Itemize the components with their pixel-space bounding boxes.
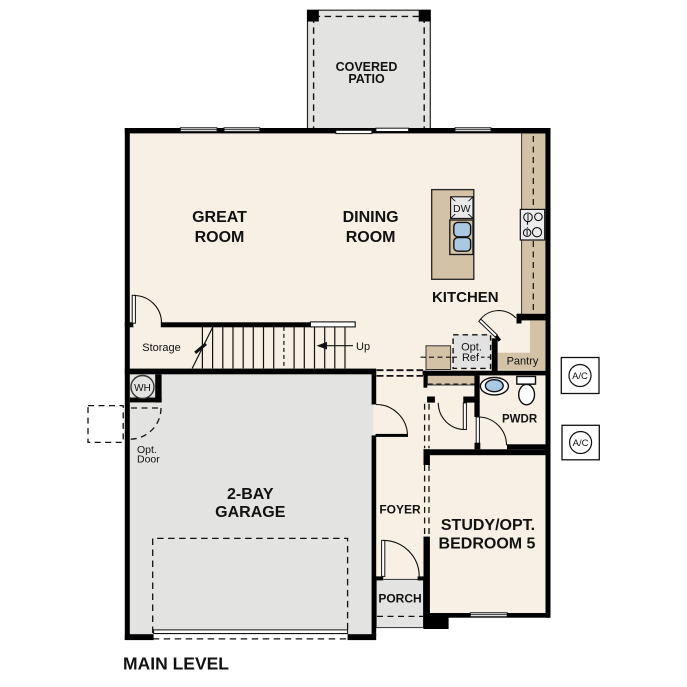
svg-text:Storage: Storage [142,342,181,354]
svg-text:Up: Up [356,341,370,353]
svg-text:PWDR: PWDR [502,414,538,426]
svg-text:MAIN LEVEL: MAIN LEVEL [123,654,229,674]
svg-text:FOYER: FOYER [379,502,421,516]
svg-text:ROOM: ROOM [346,229,396,246]
svg-text:A/C: A/C [573,438,589,449]
svg-text:BEDROOM 5: BEDROOM 5 [439,535,536,552]
svg-text:WH: WH [134,383,151,394]
svg-text:Door: Door [137,454,160,466]
svg-text:GARAGE: GARAGE [215,504,286,521]
svg-text:2-BAY: 2-BAY [227,486,274,503]
svg-text:KITCHEN: KITCHEN [432,289,499,306]
svg-text:A/C: A/C [572,371,588,382]
svg-text:PATIO: PATIO [348,72,385,86]
svg-text:Ref: Ref [462,352,480,364]
svg-text:DINING: DINING [343,209,399,226]
svg-text:GREAT: GREAT [192,209,247,226]
svg-text:Pantry: Pantry [507,356,539,368]
svg-text:PORCH: PORCH [378,591,421,605]
svg-text:ROOM: ROOM [195,229,245,246]
svg-text:DW: DW [453,203,471,215]
svg-text:STUDY/OPT.: STUDY/OPT. [441,517,535,534]
